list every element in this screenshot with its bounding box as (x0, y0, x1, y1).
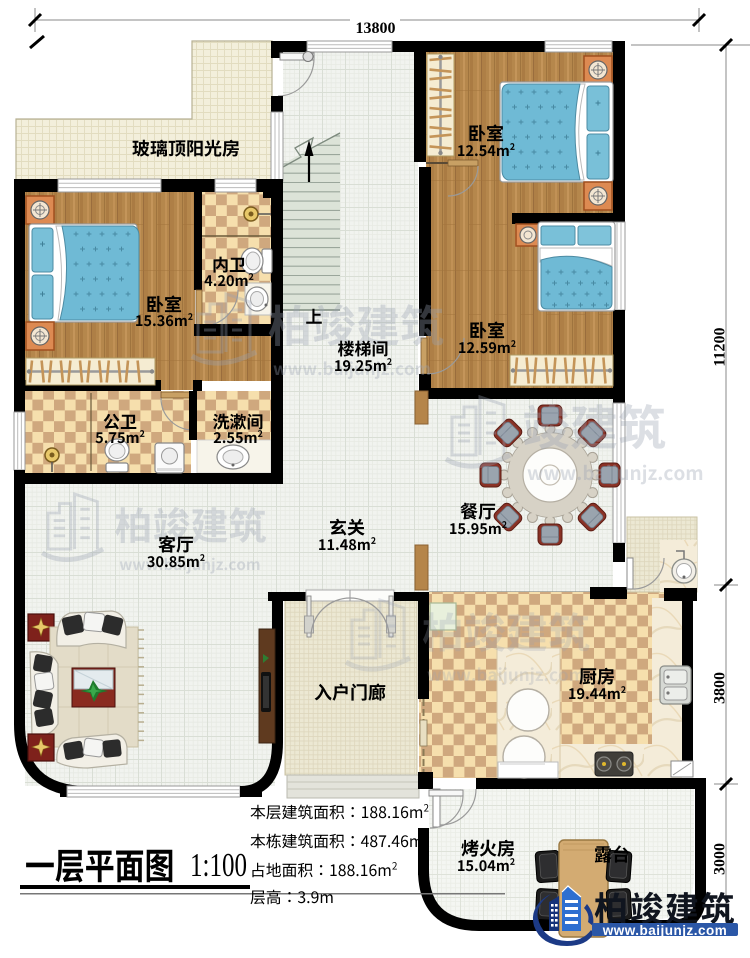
svg-text:www.baijunjz.com: www.baijunjz.com (602, 923, 728, 938)
svg-text:3000: 3000 (712, 843, 729, 875)
svg-text:11200: 11200 (712, 327, 729, 366)
svg-text:1:100: 1:100 (190, 847, 247, 884)
svg-text:13800: 13800 (356, 20, 396, 37)
svg-text:3800: 3800 (712, 672, 729, 704)
